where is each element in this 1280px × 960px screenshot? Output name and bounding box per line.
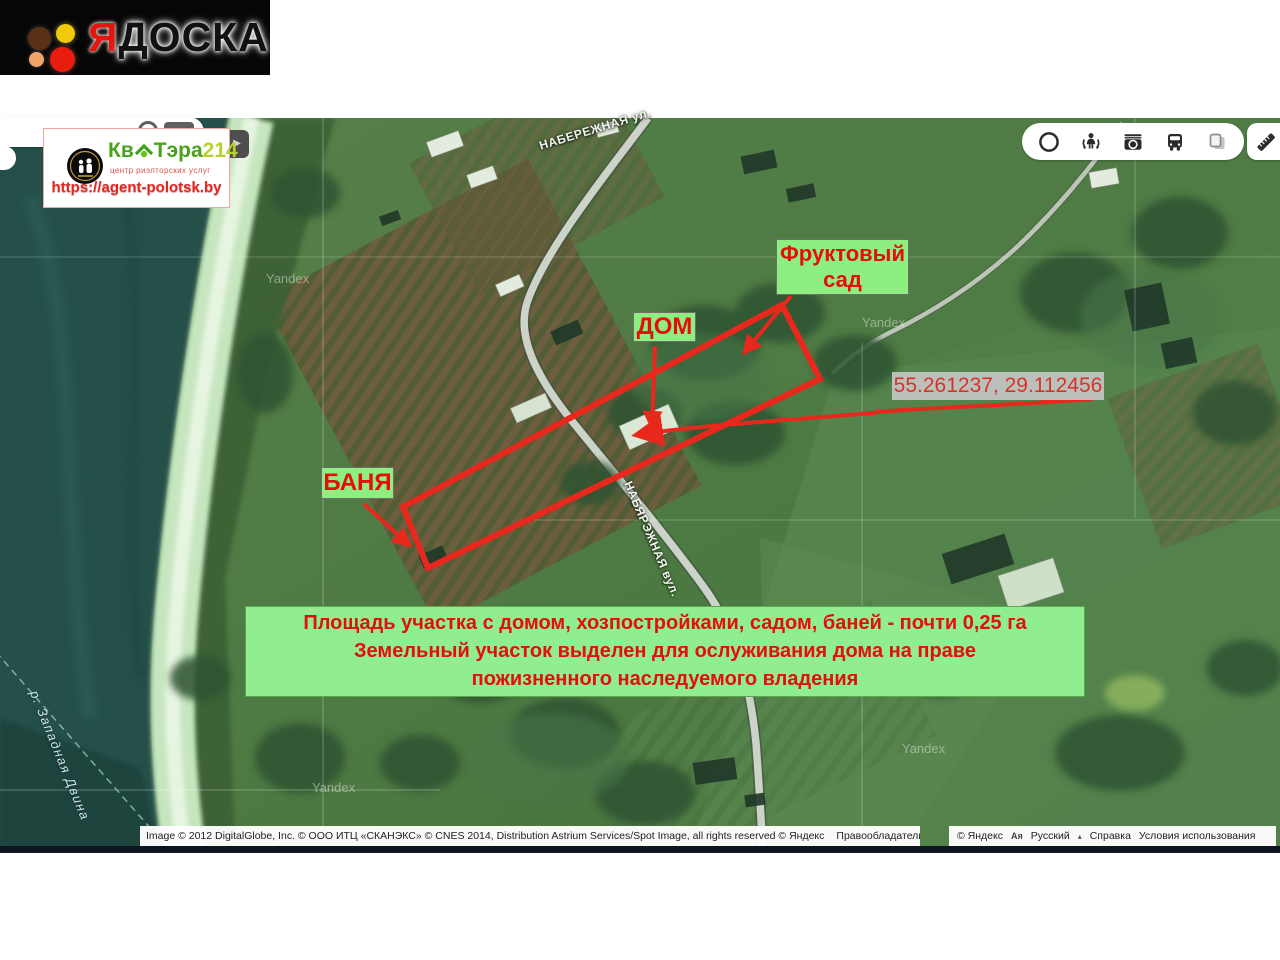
plot-info-box: Площадь участка с домом, хозпостройками,… xyxy=(245,606,1085,697)
plot-info-line1: Площадь участка с домом, хозпостройками,… xyxy=(246,609,1084,637)
agency-tagline: центр риэлторских услуг xyxy=(110,166,211,175)
transport-bus-icon[interactable] xyxy=(1162,129,1188,155)
map-controls-toolbar xyxy=(1022,123,1244,160)
bath-label: БАНЯ xyxy=(321,467,394,499)
house-roof-icon xyxy=(134,142,154,159)
agency-watermark: КвТэра214 центр риэлторских услуг https:… xyxy=(43,128,230,208)
plot-info-line3: пожизненного наследуемого владения xyxy=(246,665,1084,693)
logo-letter-ya: Я xyxy=(88,14,118,60)
language-caret-icon: ▴ xyxy=(1078,832,1082,841)
agency-name: КвТэра214 xyxy=(108,139,238,163)
language-selector[interactable]: Русский xyxy=(1031,830,1070,842)
yadoska-logo: ЯДОСКА xyxy=(0,0,270,75)
page-canvas: ЯДОСКА xyxy=(0,0,1280,960)
panoramas-icon[interactable] xyxy=(1078,129,1104,155)
agency-name-214: 214 xyxy=(203,139,238,162)
yandex-watermark: Yandex xyxy=(902,741,945,756)
logo-circle-peach xyxy=(29,52,44,67)
copy-layers-icon[interactable] xyxy=(1204,129,1230,155)
logo-circle-brown xyxy=(28,27,51,50)
map-edge-strip xyxy=(0,846,1280,853)
terms-link[interactable]: Условия использования xyxy=(1139,830,1256,842)
logo-circle-yellow xyxy=(56,24,75,43)
logo-circle-red xyxy=(50,47,75,72)
rights-holders-link[interactable]: Правообладатели xyxy=(836,830,920,842)
yandex-footer-bar: © Яндекс Aя Русский ▴ Справка Условия ис… xyxy=(949,826,1276,846)
ruler-icon xyxy=(1253,129,1279,155)
plot-info-line2: Земельный участок выделен для ослуживани… xyxy=(246,637,1084,665)
region-circle-icon[interactable] xyxy=(1036,129,1062,155)
yandex-watermark: Yandex xyxy=(266,271,309,286)
map-terrain xyxy=(0,118,1280,853)
orchard-label: Фруктовый сад xyxy=(776,239,909,295)
yandex-watermark: Yandex xyxy=(862,315,905,330)
logo-letters-rest: ДОСКА xyxy=(118,14,268,60)
photos-camera-icon[interactable] xyxy=(1120,129,1146,155)
logo-text: ЯДОСКА xyxy=(88,14,269,61)
yandex-copyright-link[interactable]: © Яндекс xyxy=(957,830,1003,842)
agency-name-tera: Тэра xyxy=(154,139,203,162)
satellite-map[interactable] xyxy=(0,118,1280,853)
house-label: ДОМ xyxy=(633,312,696,342)
agency-name-kv: Кв xyxy=(108,139,134,162)
copyright-bar: Image © 2012 DigitalGlobe, Inc. © ООО ИТ… xyxy=(140,826,920,846)
agency-url: https://agent-polotsk.by xyxy=(44,179,229,196)
yandex-watermark: Yandex xyxy=(312,780,355,795)
copyright-text: Image © 2012 DigitalGlobe, Inc. © ООО ИТ… xyxy=(146,830,824,842)
coordinates-label: 55.261237, 29.112456 xyxy=(892,372,1104,400)
help-link[interactable]: Справка xyxy=(1090,830,1131,842)
ruler-tool-button[interactable] xyxy=(1247,123,1280,160)
language-icon: Aя xyxy=(1011,831,1023,841)
